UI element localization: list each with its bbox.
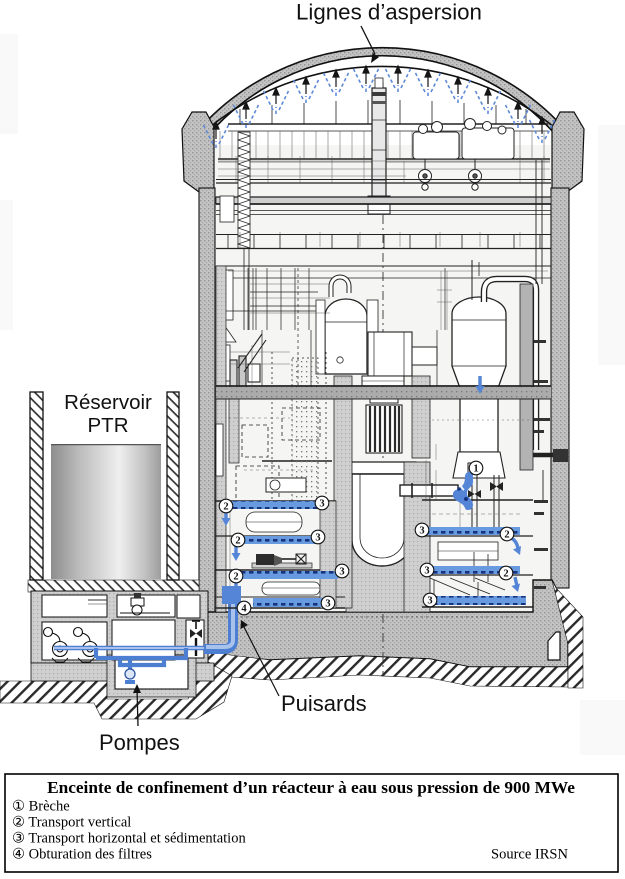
svg-text:3: 3 xyxy=(419,526,424,537)
svg-text:Enceinte de confinement d’un r: Enceinte de confinement d’un réacteur à … xyxy=(47,778,575,797)
svg-text:3: 3 xyxy=(339,567,344,578)
svg-text:Lignes d’aspersion: Lignes d’aspersion xyxy=(296,0,482,25)
svg-text:③ Transport horizontal et sédi: ③ Transport horizontal et sédimentation xyxy=(12,831,246,847)
svg-text:Puisards: Puisards xyxy=(281,691,367,716)
svg-text:Pompes: Pompes xyxy=(99,730,180,755)
svg-text:Réservoir: Réservoir xyxy=(64,391,152,414)
svg-text:① Brèche: ① Brèche xyxy=(12,799,70,815)
svg-text:2: 2 xyxy=(503,569,508,580)
svg-text:Source IRSN: Source IRSN xyxy=(491,847,568,863)
svg-text:2: 2 xyxy=(223,502,228,513)
svg-text:2: 2 xyxy=(233,572,238,583)
svg-text:3: 3 xyxy=(424,566,429,577)
svg-text:3: 3 xyxy=(427,596,432,607)
svg-text:1: 1 xyxy=(473,464,478,475)
svg-text:PTR: PTR xyxy=(88,414,129,437)
svg-text:2: 2 xyxy=(504,530,509,541)
svg-text:4: 4 xyxy=(241,604,247,615)
svg-text:3: 3 xyxy=(315,533,320,544)
svg-text:② Transport vertical: ② Transport vertical xyxy=(12,815,131,831)
svg-text:④ Obturation des filtres: ④ Obturation des filtres xyxy=(12,847,152,863)
svg-text:3: 3 xyxy=(325,599,330,610)
svg-text:3: 3 xyxy=(319,499,324,510)
svg-text:2: 2 xyxy=(235,536,240,547)
